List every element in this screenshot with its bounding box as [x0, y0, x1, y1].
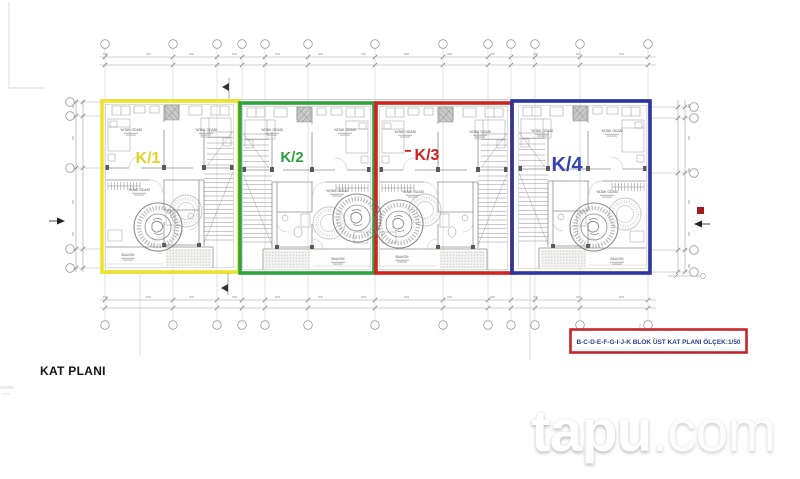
room-label-bedroom: YATAK ODASI	[128, 188, 150, 192]
watermark-brand: tapu	[531, 398, 652, 464]
room-label-bedroom: YATAK ODASI	[402, 190, 424, 194]
room-label-balcony: BALKON	[122, 253, 136, 257]
room-label-balcony: BALKON	[611, 257, 625, 261]
k3-dash-mark	[405, 150, 411, 152]
room-label-bedroom: YATAK ODASI	[531, 129, 553, 133]
room-label-balcony: BALKON	[332, 257, 346, 261]
room-label-bedroom: YATAK ODASI	[596, 190, 618, 194]
scan-artifacts	[0, 2, 44, 395]
unit-label-k2: K/2	[280, 149, 303, 166]
watermark-domain-suffix: .com	[652, 398, 776, 464]
room-label-bedroom: YATAK ODASI	[469, 130, 491, 134]
room-label-bedroom: YATAK ODASI	[394, 130, 416, 134]
unit-label-k4: K/4	[551, 154, 583, 176]
legend-text: B-C-D-E-F-G-I-J-K BLOK ÜST KAT PLANI ÖLÇ…	[577, 337, 741, 346]
floor-plan-page: YATAK ODASI YATAK ODASI YATAK ODASI BALK…	[0, 0, 800, 479]
room-label-bedroom: YATAK ODASI	[195, 128, 217, 132]
room-label-bedroom: YATAK ODASI	[326, 189, 348, 193]
room-label-bedroom: YATAK ODASI	[261, 128, 283, 132]
tapu-watermark: tapu.com	[531, 397, 775, 465]
room-label-bedroom: YATAK ODASI	[334, 128, 356, 132]
unit-label-k1: K/1	[136, 150, 161, 167]
room-label-bedroom: YATAK ODASI	[120, 128, 142, 132]
page-title: KAT PLANI	[40, 364, 106, 378]
room-label-balcony: BALKON	[396, 255, 410, 259]
plan-legend: B-C-D-E-F-G-I-J-K BLOK ÜST KAT PLANI ÖLÇ…	[571, 324, 747, 353]
red-square-marker	[697, 207, 704, 214]
room-label-bedroom: YATAK ODASI	[601, 129, 623, 133]
unit-label-k3: K/3	[415, 147, 440, 164]
